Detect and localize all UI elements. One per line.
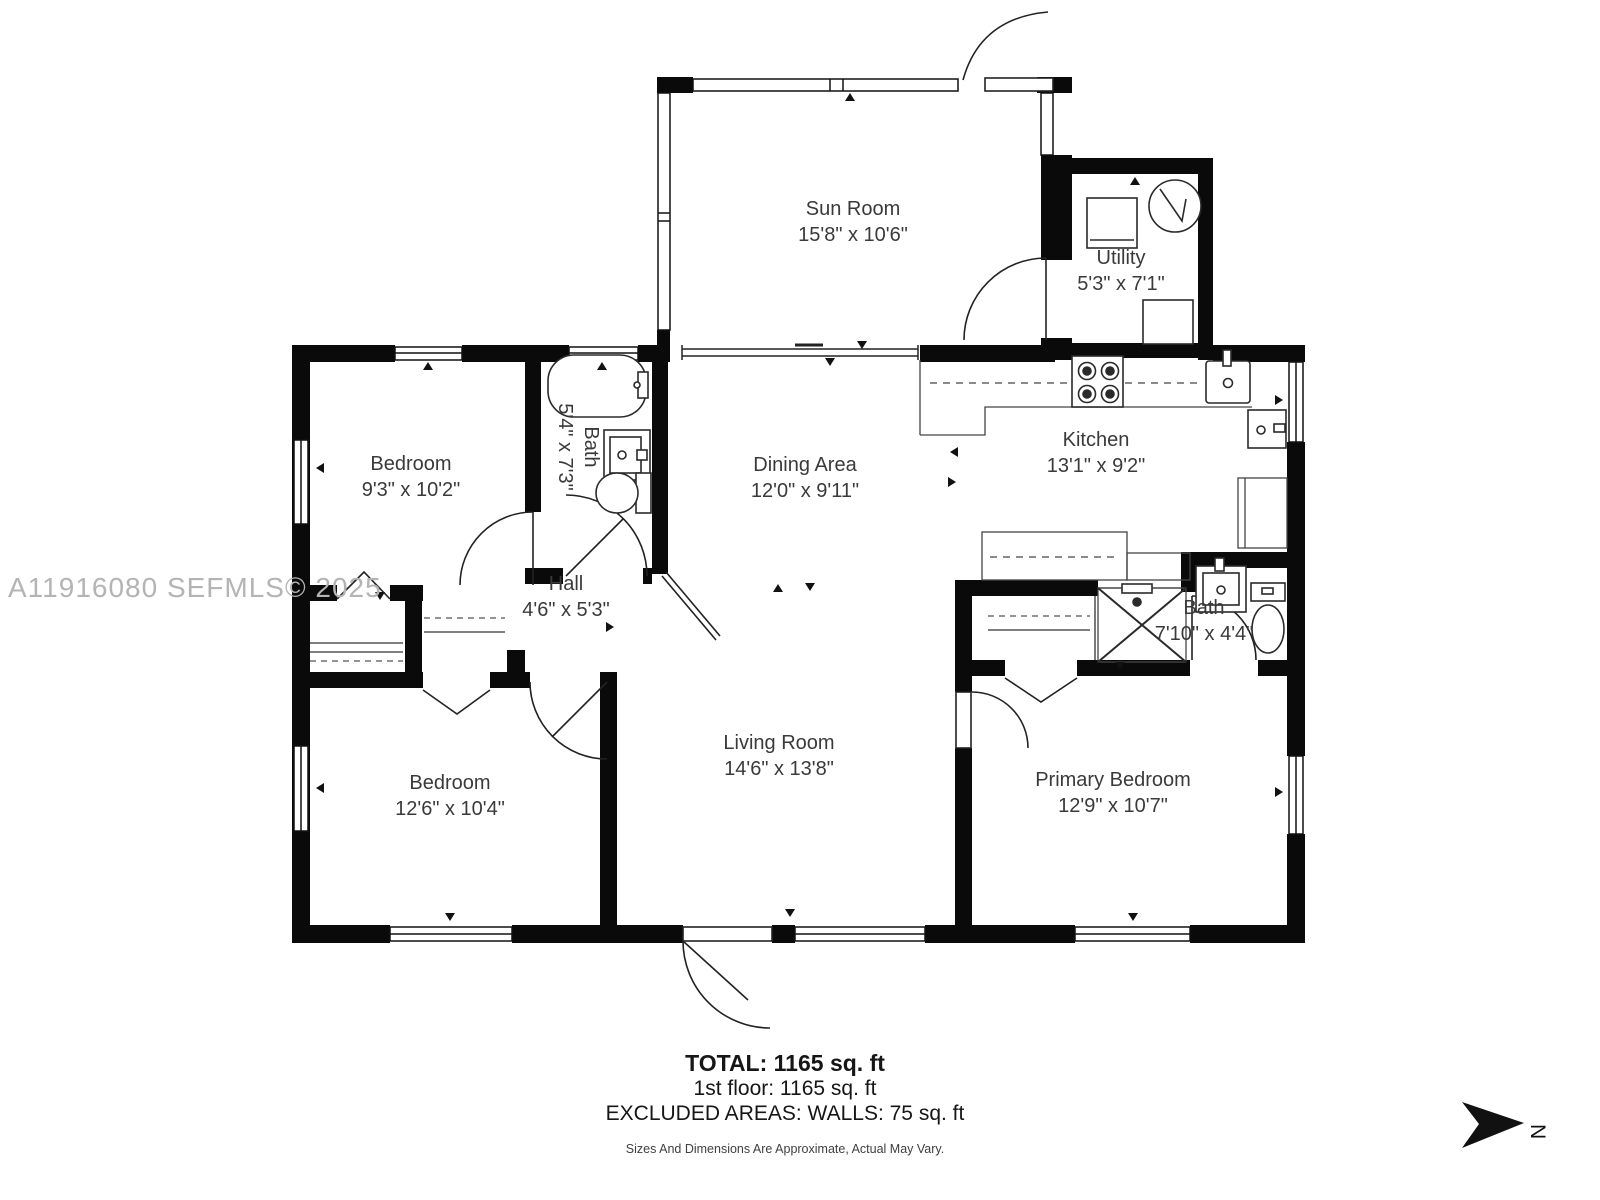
room-dims: 4'6" x 5'3" bbox=[522, 597, 609, 623]
room-label-bath-left: Bath 5'4" x 7'3" bbox=[552, 403, 604, 490]
room-label-bath-right: Bath 7'10" x 4'4" bbox=[1155, 595, 1254, 647]
refrigerator-icon bbox=[1238, 478, 1287, 548]
room-label-kitchen: Kitchen 13'1" x 9'2" bbox=[1047, 427, 1146, 479]
room-dims: 13'1" x 9'2" bbox=[1047, 453, 1146, 479]
room-dims: 5'4" x 7'3" bbox=[552, 403, 578, 490]
room-dims: 12'0" x 9'11" bbox=[751, 478, 859, 504]
room-dims: 15'8" x 10'6" bbox=[798, 222, 908, 248]
room-label-sun-room: Sun Room 15'8" x 10'6" bbox=[798, 196, 908, 248]
room-label-bedroom-bottom-left: Bedroom 12'6" x 10'4" bbox=[395, 770, 505, 822]
room-label-living-room: Living Room 14'6" x 13'8" bbox=[723, 730, 834, 782]
room-dims: 7'10" x 4'4" bbox=[1155, 621, 1254, 647]
water-heater-icon bbox=[1149, 180, 1201, 232]
room-dims: 9'3" x 10'2" bbox=[362, 477, 461, 503]
sliding-door bbox=[682, 345, 918, 360]
north-label: N bbox=[1526, 1124, 1549, 1139]
total-area: TOTAL: 1165 sq. ft bbox=[606, 1050, 965, 1076]
toilet-icon bbox=[596, 473, 651, 513]
room-name: Utility bbox=[1077, 245, 1164, 271]
room-dims: 5'3" x 7'1" bbox=[1077, 271, 1164, 297]
room-label-hall: Hall 4'6" x 5'3" bbox=[522, 571, 609, 623]
room-name: Bedroom bbox=[362, 451, 461, 477]
room-name: Bath bbox=[578, 403, 604, 490]
corner-sink-icon bbox=[1248, 410, 1286, 448]
stove-icon bbox=[1072, 356, 1123, 407]
room-label-bedroom-top-left: Bedroom 9'3" x 10'2" bbox=[362, 451, 461, 503]
room-dims: 14'6" x 13'8" bbox=[723, 756, 834, 782]
room-label-dining-area: Dining Area 12'0" x 9'11" bbox=[751, 452, 859, 504]
toilet2-icon bbox=[1251, 583, 1285, 653]
floor-plan: N Sun Room 15'8" x 10'6" Utility 5'3" x … bbox=[0, 0, 1600, 1200]
washer-icon bbox=[1087, 198, 1137, 248]
room-name: Bedroom bbox=[395, 770, 505, 796]
room-name: Living Room bbox=[723, 730, 834, 756]
room-label-primary-bedroom: Primary Bedroom 12'9" x 10'7" bbox=[1035, 767, 1191, 819]
room-name: Sun Room bbox=[798, 196, 908, 222]
room-name: Hall bbox=[522, 571, 609, 597]
room-dims: 12'9" x 10'7" bbox=[1035, 793, 1191, 819]
room-name: Bath bbox=[1155, 595, 1254, 621]
area-summary: TOTAL: 1165 sq. ft 1st floor: 1165 sq. f… bbox=[606, 1050, 965, 1156]
excluded-area: EXCLUDED AREAS: WALLS: 75 sq. ft bbox=[606, 1101, 965, 1126]
mls-watermark: A11916080 SEFMLS© 2025 bbox=[8, 572, 382, 604]
room-dims: 12'6" x 10'4" bbox=[395, 796, 505, 822]
north-arrow: N bbox=[1462, 1102, 1549, 1148]
first-floor-area: 1st floor: 1165 sq. ft bbox=[606, 1076, 965, 1101]
disclaimer-text: Sizes And Dimensions Are Approximate, Ac… bbox=[606, 1142, 965, 1156]
room-name: Primary Bedroom bbox=[1035, 767, 1191, 793]
room-name: Dining Area bbox=[751, 452, 859, 478]
closet-shelves bbox=[310, 596, 1095, 661]
dryer-icon bbox=[1143, 300, 1193, 344]
room-label-utility: Utility 5'3" x 7'1" bbox=[1077, 245, 1164, 297]
room-name: Kitchen bbox=[1047, 427, 1146, 453]
